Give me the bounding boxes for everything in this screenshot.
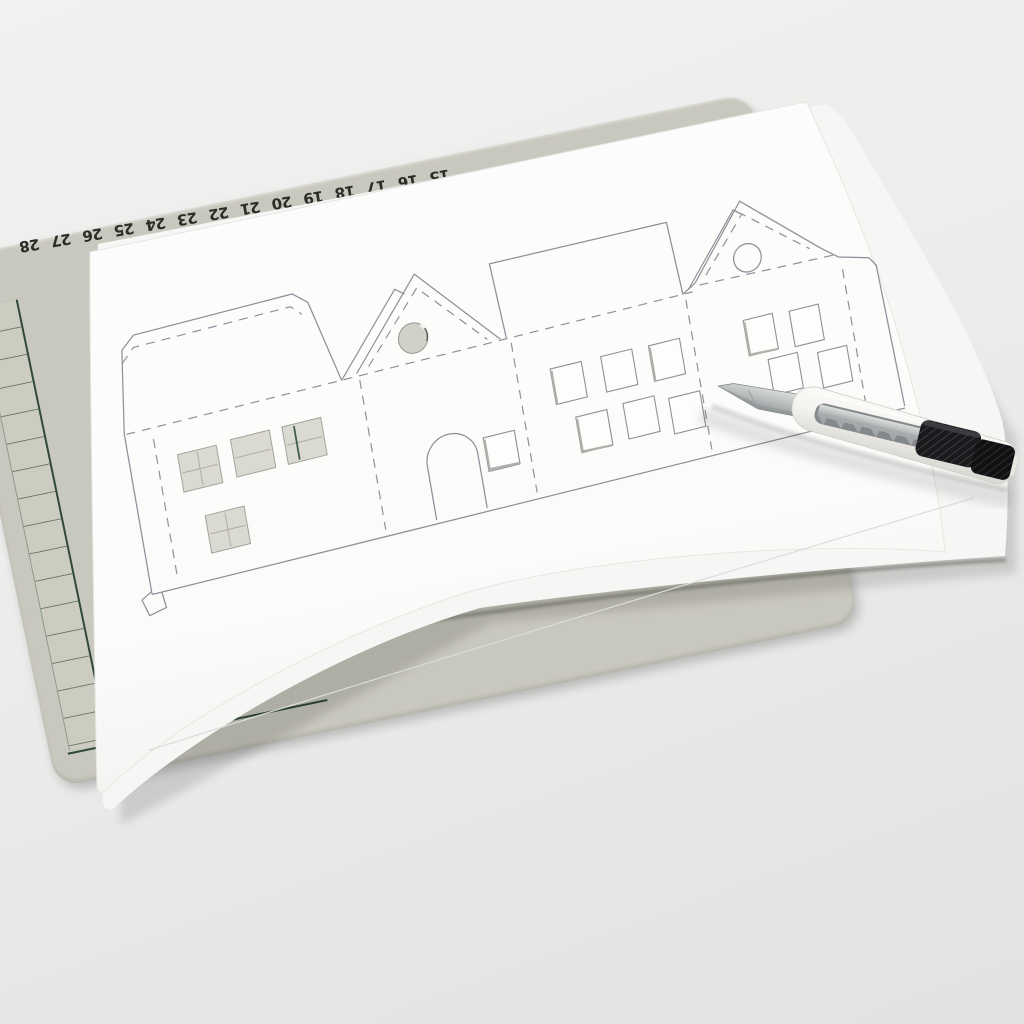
cut-window <box>789 304 824 347</box>
cut-window <box>601 349 638 392</box>
cut-window <box>768 352 803 395</box>
photo-scene: 022 28 27 26 25 24 23 22 21 20 19 18 17 … <box>0 0 1024 1024</box>
cut-window <box>817 345 852 388</box>
scene-drawing <box>0 0 1024 1024</box>
cut-window <box>623 396 660 439</box>
cut-window <box>669 391 706 434</box>
